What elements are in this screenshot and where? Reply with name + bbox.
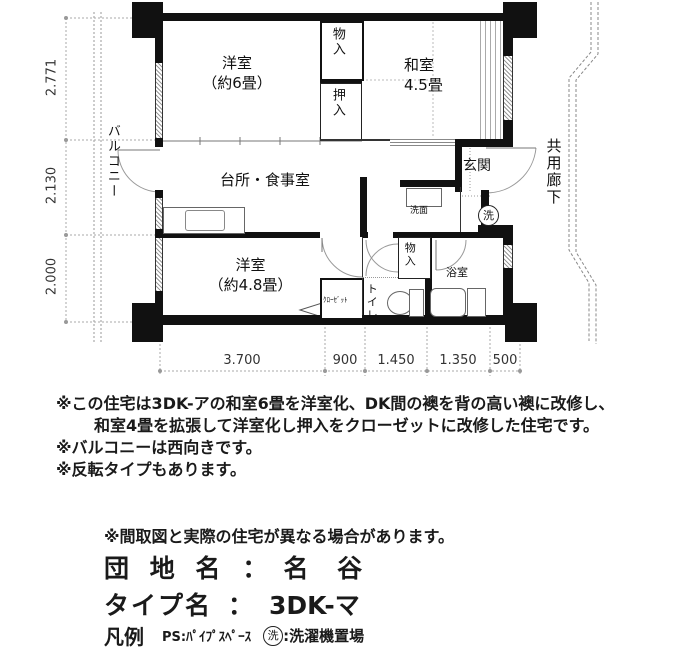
room-label-dk: 台所・食事室 [190, 171, 340, 191]
room-label-yoshitsu6: 洋室 （約6畳） [182, 54, 292, 93]
dim-bottom-1: 3.700 [212, 353, 272, 368]
window-left-room6 [155, 63, 163, 138]
type-name-label: タイプ名 [104, 586, 212, 622]
toilet-hall-divider [362, 277, 398, 278]
wall-top [163, 13, 505, 21]
dim-bottom-5: 500 [478, 353, 532, 368]
window-washitsu [503, 56, 513, 120]
dim-bottom-3: 1.450 [366, 353, 426, 368]
room-yoshitsu48-name: 洋室 [193, 256, 308, 276]
legend-laundry-icon: 洗 [263, 626, 283, 646]
floorplan-page: 洗 洋室 （約6畳） 物入 押入 和室 4.5畳 バルコニー 台所・食事室 玄関… [0, 0, 700, 650]
room-label-bath: 浴室 [446, 266, 468, 280]
legend-laundry-text: :洗濯機置場 [283, 625, 364, 646]
dim-left-2: 2.130 [45, 158, 60, 214]
wall-toilet-left [362, 237, 363, 315]
room-label-washitsu: 和室 4.5畳 [404, 56, 443, 95]
corridor-inner-line [576, 2, 598, 344]
pillar-top-left [132, 2, 163, 38]
type-name-value: 3DK-マ [269, 586, 360, 622]
wall-senmen-right [460, 187, 461, 232]
washstand [406, 188, 442, 207]
window-left-dk [155, 198, 163, 229]
wall-bath-top [425, 232, 513, 238]
wall-left-jamb1 [155, 138, 163, 147]
laundry-place-label: 洗 [483, 209, 494, 222]
room-washitsu-size: 4.5畳 [404, 76, 443, 96]
wall-mid-horizontal-b [363, 232, 368, 238]
pillar-top-right [503, 2, 537, 38]
disclaimer-text: ※間取図と実際の住宅が異なる場合があります。 [104, 523, 454, 547]
window-bath [503, 245, 513, 268]
renovation-notes: ※この住宅は3DK-アの和室6畳を洋室化、DK間の襖を背の高い襖に改修し、 和室… [56, 393, 614, 481]
room-label-monoiri-bottom: 物入 [402, 242, 416, 268]
balcony-door-arc [118, 150, 160, 192]
legend-title: 凡例 [104, 621, 144, 650]
estate-name-label: 団 地 名 [104, 549, 226, 585]
room-label-yoshitsu48: 洋室 （約4.8畳） [193, 256, 308, 295]
note-line-1: ※この住宅は3DK-アの和室6畳を洋室化、DK間の襖を背の高い襖に改修し、 [56, 393, 614, 415]
room-label-genkan: 玄関 [463, 157, 491, 175]
fusuma-band [390, 139, 455, 146]
wall-genkan-top [455, 139, 513, 147]
room-label-toilet: トイレ [364, 283, 378, 322]
bottom-dimension-lines [160, 327, 520, 376]
wall-dk-right [360, 177, 367, 237]
estate-name-colon: ： [242, 549, 267, 585]
dim-left-3: 2.000 [45, 249, 60, 305]
room-washitsu-name: 和室 [404, 56, 443, 76]
legend-row: 凡例 PS:ﾊﾟｲﾌﾟｽﾍﾟｰｽ 洗 :洗濯機置場 [104, 621, 364, 650]
type-name-row: タイプ名 ： 3DK-マ [104, 586, 360, 622]
toilet-tank [409, 289, 424, 317]
wall-right-bath-bottom [503, 268, 513, 315]
note-line-2: 和室4畳を拡張して洋室化し押入をクローゼットに改修した住宅です。 [56, 415, 614, 437]
room-label-closet: ｸﾛｰｾﾞｯﾄ [323, 296, 348, 305]
room48-door-arc [322, 238, 362, 277]
note-line-4: ※反転タイプもあります。 [56, 459, 614, 481]
kitchen-sink [185, 210, 225, 231]
wall-right-washitsu-top [503, 36, 513, 56]
washitsu-side-panel [480, 21, 503, 139]
room-label-senmen: 洗面 [410, 206, 428, 218]
room-label-monoiri-top: 物入 [328, 27, 345, 57]
wall-right-washitsu-bottom [503, 120, 513, 139]
room-label-corridor: 共用廊下 [543, 138, 563, 206]
room-yoshitsu48-size: （約4.8畳） [193, 276, 308, 296]
laundry-place-mark: 洗 [478, 205, 499, 226]
corridor-outer-line [569, 2, 591, 341]
bath-washer-area [467, 288, 486, 317]
legend-ps-text: PS:ﾊﾟｲﾌﾟｽﾍﾟｰｽ [162, 626, 251, 645]
room-label-oshiire: 押入 [328, 88, 345, 118]
type-name-colon: ： [228, 586, 253, 622]
dim-left-1: 2.771 [45, 50, 60, 106]
estate-name-row: 団 地 名 ： 名 谷 [104, 549, 372, 585]
room-label-balcony: バルコニー [103, 124, 120, 199]
bathtub [430, 288, 466, 317]
estate-name-value: 名 谷 [283, 549, 372, 585]
wall-left-jamb2 [155, 190, 163, 198]
entrance-door-arc [486, 148, 536, 193]
wall-senmen-top [400, 180, 457, 187]
room-yoshitsu6-name: 洋室 [182, 54, 292, 74]
wall-left-seg1 [155, 36, 163, 63]
room-yoshitsu6-size: （約6畳） [182, 74, 292, 94]
oshiire-bottom-line [320, 139, 390, 141]
note-line-3: ※バルコニーは西向きです。 [56, 437, 614, 459]
wall-left-seg2 [155, 291, 163, 315]
wall-left-junction [155, 229, 163, 238]
window-left-room48 [155, 238, 163, 291]
